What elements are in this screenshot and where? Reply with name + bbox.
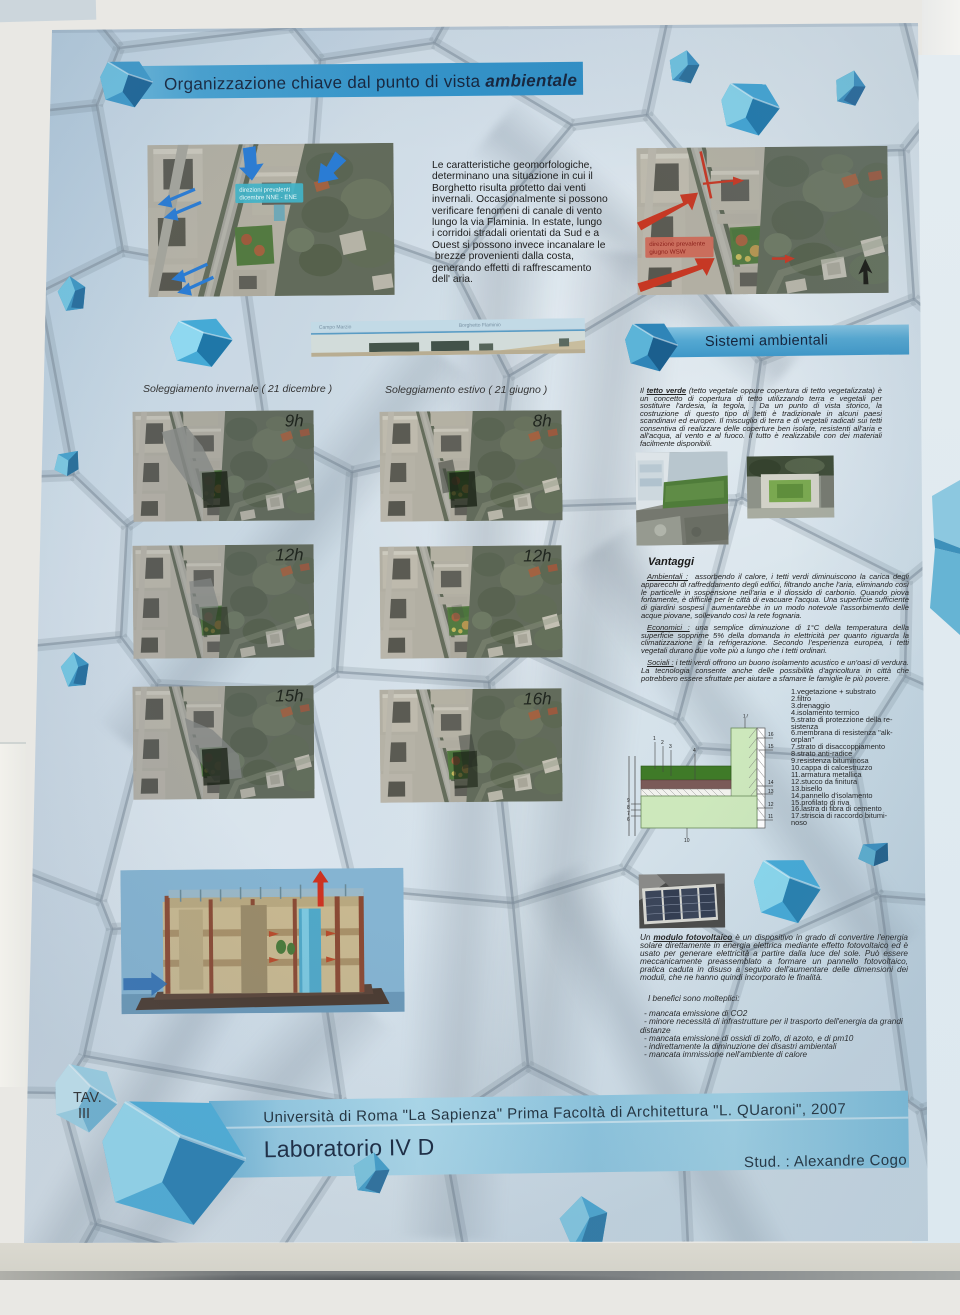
svg-text:11: 11 [768,814,773,820]
svg-text:6: 6 [627,817,630,823]
svg-text:9: 9 [627,798,630,804]
svg-text:2: 2 [661,740,664,746]
svg-text:15: 15 [768,744,774,750]
svg-text:13: 13 [768,789,774,795]
svg-text:3: 3 [669,744,672,750]
svg-text:12: 12 [768,802,774,808]
svg-text:16: 16 [768,732,774,738]
svg-text:dicembre NNE - ENE: dicembre NNE - ENE [239,194,297,202]
svg-text:Borghetto Flaminio: Borghetto Flaminio [459,322,501,329]
svg-text:14: 14 [768,780,774,786]
svg-text:4: 4 [693,748,696,754]
svg-text:17: 17 [743,714,749,720]
svg-text:direzione prevalente: direzione prevalente [649,241,706,248]
svg-text:Campo Marzio: Campo Marzio [319,324,352,330]
svg-text:direzioni prevalenti: direzioni prevalenti [239,186,290,194]
svg-text:giugno WSW: giugno WSW [649,249,686,256]
svg-text:1: 1 [653,736,656,742]
svg-text:10: 10 [684,838,690,842]
